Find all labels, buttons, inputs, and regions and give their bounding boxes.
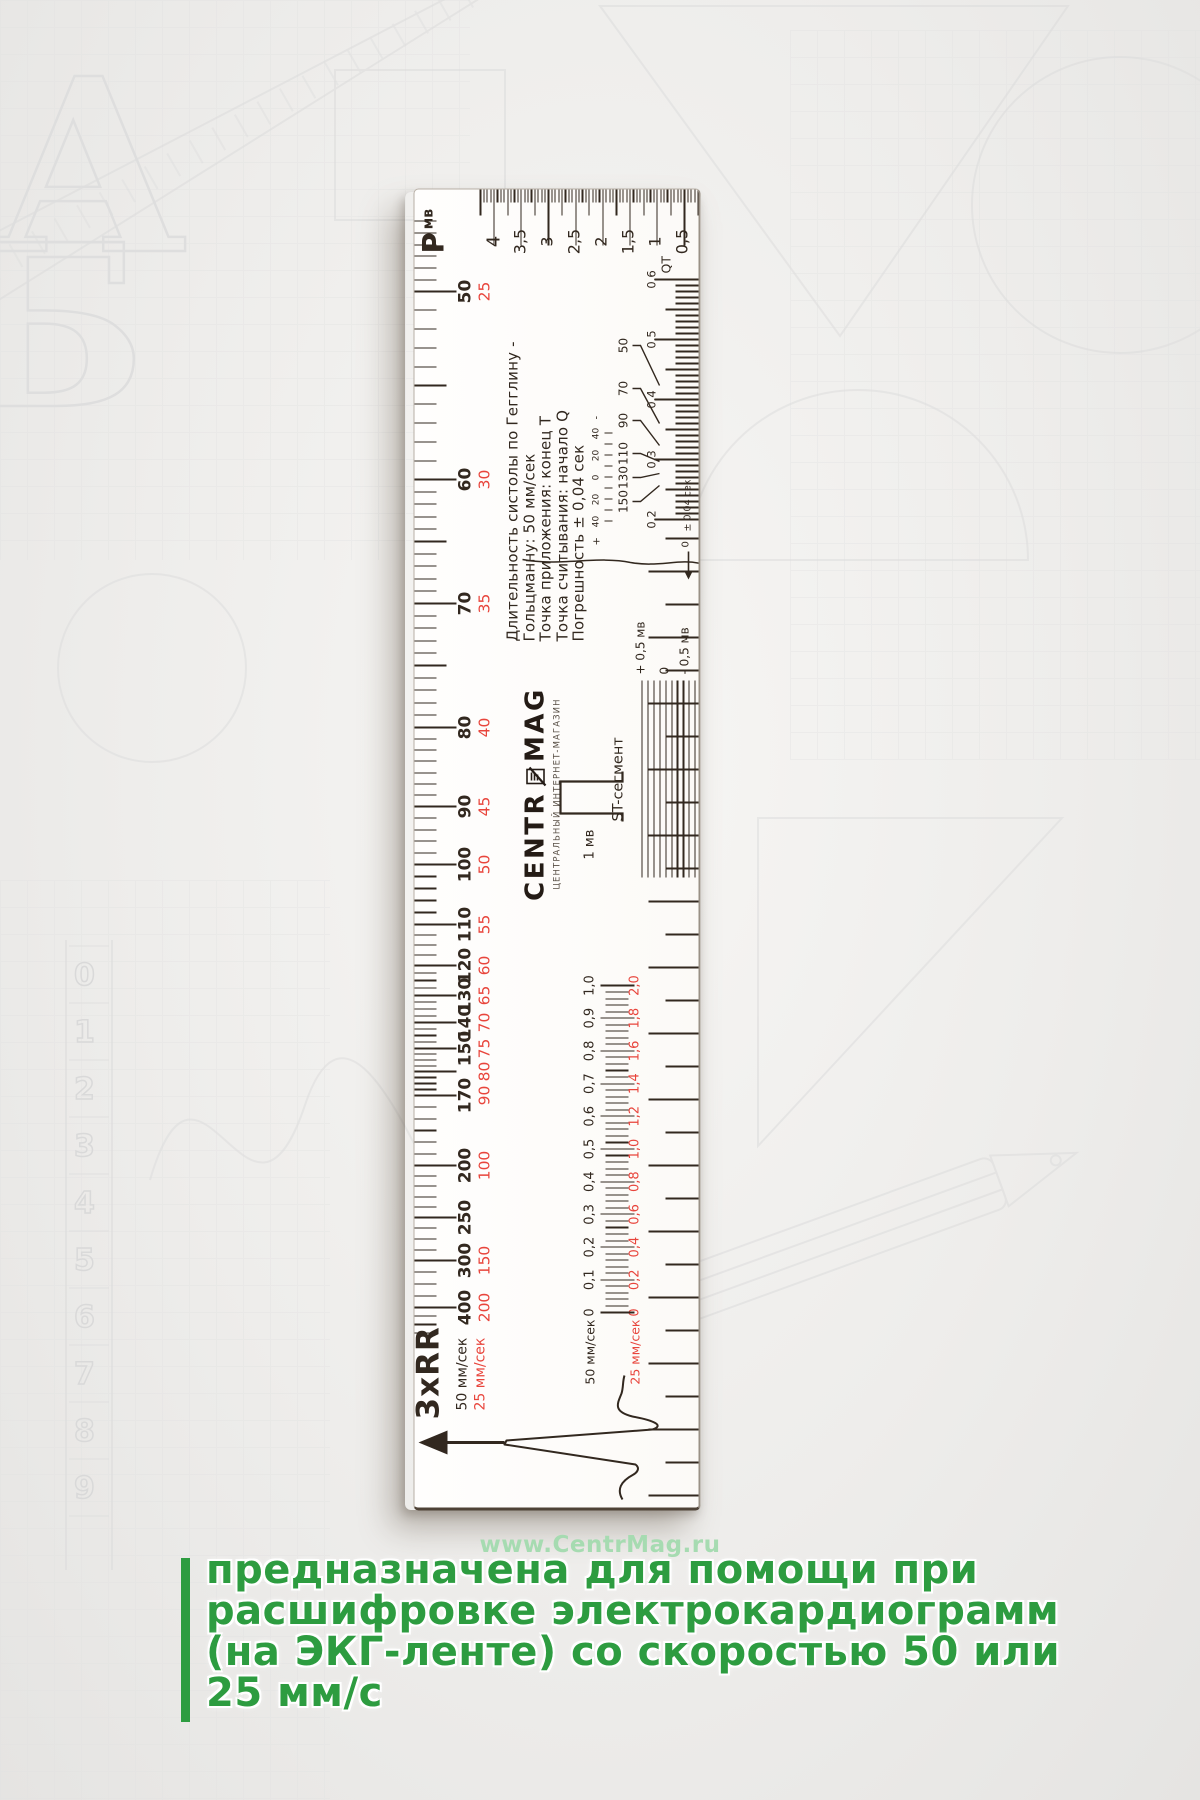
time-tick (600, 1115, 634, 1116)
rr-hr-label: 100 (455, 840, 475, 888)
pmv-tick (568, 188, 569, 202)
time-tick (605, 1226, 628, 1227)
time-tick (605, 1259, 628, 1260)
logo-left: CENTR (520, 792, 550, 901)
time-tick (605, 1194, 628, 1195)
rr-minor-tick (414, 255, 436, 256)
rr-minor-tick (414, 503, 436, 504)
rr-minor-tick (414, 244, 436, 245)
time50-value-label: 0,4 (582, 1163, 597, 1199)
pmv-tick (500, 188, 501, 202)
time-tick (600, 1246, 634, 1247)
rr-major-tick (414, 290, 456, 292)
cm-tick (665, 801, 698, 802)
cm-tick (665, 1263, 698, 1264)
qt-tick (675, 434, 698, 435)
rr-minor-tick (414, 1332, 436, 1333)
rr-half-label: 55 (475, 900, 493, 948)
qt-tick (675, 296, 698, 297)
rr-minor-tick (414, 491, 436, 492)
time-tick (605, 1174, 628, 1175)
rr-scale-title: 3xRR (413, 1326, 446, 1419)
rr-minor-tick (414, 460, 436, 461)
pmv-tick (598, 188, 599, 202)
pmv-tick (622, 188, 623, 202)
time-tick (605, 1076, 628, 1077)
qt-tol-mark: 20 (591, 489, 601, 509)
pmv-tick (581, 188, 582, 202)
time-tick (605, 1030, 628, 1031)
cm-tick (648, 1428, 698, 1429)
rr-minor-tick (414, 540, 446, 541)
rr-minor-tick (414, 1227, 436, 1228)
time50-value-label: 0,9 (582, 1000, 597, 1036)
rr-minor-tick (414, 794, 436, 795)
rr-minor-tick (414, 615, 436, 616)
qt-tol-tick (604, 510, 612, 511)
pmv-tick (544, 188, 545, 202)
rr-minor-tick (414, 1059, 436, 1060)
rr-major-tick (414, 805, 456, 807)
cm-tick (648, 1098, 698, 1099)
qt-tol-tick (604, 444, 612, 445)
qt-tol-tick (604, 466, 612, 467)
rr-minor-tick (414, 1238, 436, 1239)
time-tick (605, 1141, 628, 1142)
pmv-tick (537, 188, 538, 202)
headline-accent-bar (181, 1558, 190, 1722)
pmv-tick (670, 188, 671, 215)
time50-value-label: 1,0 (582, 967, 597, 1003)
time-tick (605, 1168, 628, 1169)
time-tick (605, 1109, 628, 1110)
qt-tol-mark: 40 (591, 511, 601, 531)
rr-half-label: 25 (475, 267, 493, 315)
qt-tick (675, 284, 698, 285)
ecg-waveform (492, 1365, 664, 1505)
time-tick (605, 1069, 628, 1070)
pmv-tick (486, 188, 487, 202)
time-tick (605, 1037, 628, 1038)
rr-minor-tick (414, 403, 436, 404)
pmv-tick (483, 188, 484, 202)
pmv-tick (643, 188, 644, 215)
st-hatch-line (665, 680, 666, 877)
pmv-tick (554, 188, 555, 202)
cm-tick (665, 669, 698, 670)
rr-minor-tick (414, 944, 436, 945)
qt-tick (675, 350, 698, 351)
ecg-ruler: 3xRR 50 мм/сек 25 мм/сек Р мв Длительнос… (413, 188, 700, 1510)
pmv-value-label: 0,5 (672, 215, 691, 267)
pmv-tick (578, 188, 579, 202)
rr-minor-tick (414, 232, 436, 233)
qt-tick (675, 392, 698, 393)
rr-minor-tick (414, 1271, 436, 1272)
rr-minor-tick (414, 1196, 436, 1197)
info-line: Погрешность ± 0,04 сек (570, 249, 587, 641)
divider-squiggle (518, 549, 700, 571)
pmv-value-label: 4 (483, 215, 504, 267)
cm-tick (648, 1230, 698, 1231)
time-tick (605, 1240, 628, 1241)
qt-tick (675, 356, 698, 357)
qt-tolerance-zero: 0 (680, 541, 691, 547)
pmv-tick (595, 188, 596, 202)
pmv-tick (690, 188, 691, 202)
time-tick (605, 1266, 628, 1267)
pmv-value-label: 1,5 (618, 215, 637, 267)
pmv-tick (564, 188, 565, 202)
qt-tol-mark: 40 (591, 423, 601, 443)
rr-minor-tick (414, 852, 436, 853)
cm-tick (648, 1362, 698, 1363)
pmv-value-label: 3 (537, 215, 556, 267)
cm-tick (665, 735, 698, 736)
cm-tick (665, 933, 698, 934)
rr-minor-tick (414, 565, 436, 566)
rr-minor-tick (414, 689, 436, 690)
pmv-tick (649, 188, 650, 202)
rr-half-label: 200 (475, 1283, 493, 1331)
rr-major-tick (414, 602, 456, 604)
rr-minor-tick (414, 640, 436, 641)
rr-minor-tick (414, 347, 436, 348)
time-tick (605, 1298, 628, 1299)
time-tick (605, 1135, 628, 1136)
rr-major-tick (414, 964, 456, 966)
rr-major-tick (414, 478, 456, 480)
rr-minor-tick (414, 840, 436, 841)
time-tick (605, 1056, 628, 1057)
rr-major-tick (414, 994, 456, 996)
qt-tick (675, 320, 698, 321)
time50-value-label: 0 (582, 1294, 597, 1330)
qt-tick (675, 344, 698, 345)
rr-minor-tick (414, 1323, 436, 1324)
rr-minor-tick (414, 1082, 436, 1083)
rr-minor-tick (414, 899, 436, 900)
pmv-value-label: 2,5 (564, 215, 583, 267)
qt-tick (675, 440, 698, 441)
pmv-tick (653, 188, 654, 202)
rr-minor-tick (414, 279, 436, 280)
rr-hr-label: 300 (455, 1236, 475, 1284)
qt-tick (675, 470, 698, 471)
qt-tol-tick (604, 488, 612, 489)
time50-value-label: 0,3 (582, 1196, 597, 1232)
rr-minor-tick (414, 1076, 436, 1077)
ruler-surface: 3xRR 50 мм/сек 25 мм/сек Р мв Длительнос… (413, 188, 700, 1510)
rr-major-tick (414, 726, 456, 728)
time-tick (605, 1102, 628, 1103)
pmv-tick (527, 188, 528, 202)
time-tick (605, 991, 628, 992)
pmv-tick (636, 188, 637, 202)
qt-tick (675, 332, 698, 333)
rr-hr-label: 400 (455, 1283, 475, 1331)
rr-major-tick (414, 863, 456, 865)
st-hatch-line (688, 680, 689, 877)
rr-minor-tick (414, 817, 436, 818)
time-tick (605, 1187, 628, 1188)
st-hatch-line (671, 680, 672, 877)
rr-major-tick (414, 1021, 456, 1023)
pmv-tick (660, 188, 661, 202)
rr-half-label: 30 (475, 455, 493, 503)
rr-minor-tick (414, 772, 436, 773)
time-tick (605, 1004, 628, 1005)
qt-tolerance-label: ± 0,04 сек (682, 479, 693, 531)
headline-line: (на ЭКГ-ленте) со скоростью 50 или (206, 1632, 1196, 1673)
pmv-value-label: 3,5 (510, 215, 529, 267)
time-tick (605, 1089, 628, 1090)
pmv-tick (530, 188, 531, 202)
pmv-tick (663, 188, 664, 202)
headline-line: предназначена для помощи при (206, 1550, 1196, 1591)
st-hatch-line (682, 680, 683, 877)
qt-tick (675, 476, 698, 477)
time-tick (600, 1017, 634, 1018)
rr-hr-label: 60 (455, 455, 475, 503)
st-hatch-line (641, 680, 642, 877)
pmv-tick (490, 188, 491, 202)
time50-value-label: 0,2 (582, 1229, 597, 1265)
cm-tick (648, 702, 698, 703)
rr-minor-tick (414, 1295, 436, 1296)
rr-minor-tick (414, 1065, 436, 1066)
systole-info-text: Длительность систолы по Гегглину -Гольцм… (504, 249, 587, 641)
pmv-tick (632, 188, 633, 202)
rr-major-tick (414, 1070, 456, 1072)
pmv-tick (585, 188, 586, 202)
rr-minor-tick (414, 516, 436, 517)
pmv-tick (551, 188, 552, 202)
rr-minor-tick (414, 309, 436, 310)
cm-tick (665, 1461, 698, 1462)
qt-plus-sign: + (591, 537, 602, 545)
qt-tol-tick (604, 521, 612, 522)
st-hatch-line (647, 680, 648, 877)
time-tick (605, 1024, 628, 1025)
time50-value-label: 0,6 (582, 1098, 597, 1134)
pmv-tick (524, 188, 525, 202)
time-tick (605, 1063, 628, 1064)
qt-tick (675, 362, 698, 363)
headline-line: расшифровке электрокардиограмм (206, 1591, 1196, 1632)
rr-minor-tick (414, 1053, 436, 1054)
rr-minor-tick (414, 652, 436, 653)
qt-tick (675, 410, 698, 411)
pmv-tick (558, 188, 559, 202)
cm-tick (665, 1329, 698, 1330)
pmv-tick (694, 188, 695, 202)
time-tick (605, 1233, 628, 1234)
rr-hr-label: 80 (455, 703, 475, 751)
pmv-tick (507, 188, 508, 215)
qt-tol-mark: 0 (591, 467, 601, 487)
time-tick (605, 1285, 628, 1286)
time50-value-label: 0,1 (582, 1261, 597, 1297)
rr-half-label: 35 (475, 579, 493, 627)
qt-tick (675, 326, 698, 327)
cm-tick (648, 1164, 698, 1165)
pmv-value-label: 1 (645, 215, 664, 267)
pmv-tick (639, 188, 640, 202)
pmv-tick (680, 188, 681, 202)
rr-minor-tick (414, 627, 436, 628)
rr-minor-tick (414, 1015, 436, 1016)
p-unit: мв (420, 208, 450, 228)
cm-tick (665, 603, 698, 604)
qt-tick (675, 416, 698, 417)
pmv-tick (605, 188, 606, 202)
rr-minor-tick (414, 783, 436, 784)
qt-tick (675, 422, 698, 423)
st-hatch-line (653, 680, 654, 877)
rr-half-label: 45 (475, 782, 493, 830)
info-line: Точка считывания: начало Q (554, 249, 571, 641)
cm-tick (648, 570, 698, 571)
rr-minor-tick (414, 954, 436, 955)
logo-document-icon (525, 767, 546, 787)
rr-minor-tick (414, 1283, 436, 1284)
pmv-tick (592, 188, 593, 202)
qt-tick (675, 512, 698, 513)
time-tick (605, 1207, 628, 1208)
pmv-tick (687, 188, 688, 202)
product-headline: предназначена для помощи при расшифровке… (206, 1550, 1196, 1714)
st-plus-label: + 0,5 мв (633, 621, 647, 674)
rr-minor-tick (414, 590, 436, 591)
one-mv-label: 1 мв (582, 829, 597, 859)
rr-half-label: 100 (475, 1141, 493, 1189)
time-tick (600, 1083, 634, 1084)
rr-major-tick (414, 1164, 456, 1166)
pmv-tick (646, 188, 647, 202)
cm-tick (665, 867, 698, 868)
pmv-tick (615, 188, 616, 215)
cm-tick (648, 900, 698, 901)
rr-hr-label: 90 (455, 782, 475, 830)
qt-tol-tick (604, 499, 612, 500)
rr-minor-tick (414, 702, 436, 703)
rr-minor-tick (414, 1118, 436, 1119)
rr-minor-tick (414, 664, 446, 665)
qt-tick (675, 374, 698, 375)
pmv-tick (588, 188, 589, 215)
rr-half-label: 50 (475, 840, 493, 888)
rr-minor-tick (414, 738, 436, 739)
rr-hr-label: 250 (455, 1193, 475, 1241)
cm-tick (665, 1197, 698, 1198)
qt-tick (675, 314, 698, 315)
qt-tick (675, 482, 698, 483)
rr-minor-tick (414, 1206, 436, 1207)
info-line: Гольцманну: 50 мм/сек (521, 249, 538, 641)
rr-minor-tick (414, 1129, 436, 1130)
time-tick (605, 1155, 628, 1156)
rr-speed-50-label: 50 мм/сек (454, 1337, 470, 1410)
pmv-tick (534, 188, 535, 215)
rr-minor-tick (414, 220, 436, 221)
rr-minor-tick (414, 1008, 436, 1009)
time-tick (605, 998, 628, 999)
cm-tick (665, 1065, 698, 1066)
rr-minor-tick (414, 1041, 436, 1042)
pmv-value-label: 2 (591, 215, 610, 267)
st-hatch-line (694, 680, 695, 877)
time-tick (605, 1161, 628, 1162)
rr-minor-tick (414, 749, 436, 750)
qt-tol-mark: 20 (591, 445, 601, 465)
time-tick (605, 1253, 628, 1254)
rr-minor-tick (414, 528, 436, 529)
pmv-tick (571, 188, 572, 202)
p-mv-title: Р мв (416, 208, 450, 253)
rr-minor-tick (414, 578, 436, 579)
rr-minor-tick (414, 1185, 436, 1186)
pmv-tick (677, 188, 678, 202)
time-tick (600, 984, 634, 985)
rr-major-tick (414, 923, 456, 925)
time-tick (605, 1096, 628, 1097)
rr-minor-tick (414, 887, 436, 888)
rr-minor-tick (414, 366, 436, 367)
cm-tick (648, 834, 698, 835)
rr-minor-tick (414, 1028, 436, 1029)
qt-tick (675, 290, 698, 291)
rr-hr-label: 170 (455, 1071, 475, 1119)
time-tick (605, 1220, 628, 1221)
rr-minor-tick (414, 934, 436, 935)
rr-minor-tick (414, 553, 436, 554)
pmv-tick (697, 188, 698, 215)
cm-tick (648, 636, 698, 637)
rr-minor-tick (414, 1249, 436, 1250)
rr-hr-label: 70 (455, 579, 475, 627)
rr-half-label: 40 (475, 703, 493, 751)
info-line: Точка приложения: конец Т (537, 249, 554, 641)
time-tick (600, 1148, 634, 1149)
rr-minor-tick (414, 1153, 436, 1154)
cm-tick (648, 1032, 698, 1033)
qt-tick (675, 446, 698, 447)
qt-tick (675, 464, 698, 465)
pmv-tick (619, 188, 620, 202)
rr-minor-tick (414, 972, 436, 973)
rr-minor-tick (414, 1315, 436, 1316)
rr-hr-label: 200 (455, 1141, 475, 1189)
qt-tol-tick (604, 477, 612, 478)
cm-tick (648, 1494, 698, 1495)
rr-minor-tick (414, 1106, 436, 1107)
pmv-tick (513, 188, 514, 202)
rr-minor-tick (414, 1141, 436, 1142)
qt-fan-lines (610, 272, 670, 522)
headline-line: 25 мм/с (206, 1673, 1196, 1714)
qt-tick (675, 386, 698, 387)
cm-tick (665, 1395, 698, 1396)
qt-tol-tick (604, 433, 612, 434)
rr-major-tick (414, 1216, 456, 1218)
time-tick (600, 1181, 634, 1182)
qt-tick (675, 380, 698, 381)
pmv-tick (673, 188, 674, 202)
time50-value-label: 0,7 (582, 1065, 597, 1101)
rr-minor-tick (414, 267, 436, 268)
rr-major-tick (414, 1047, 456, 1049)
